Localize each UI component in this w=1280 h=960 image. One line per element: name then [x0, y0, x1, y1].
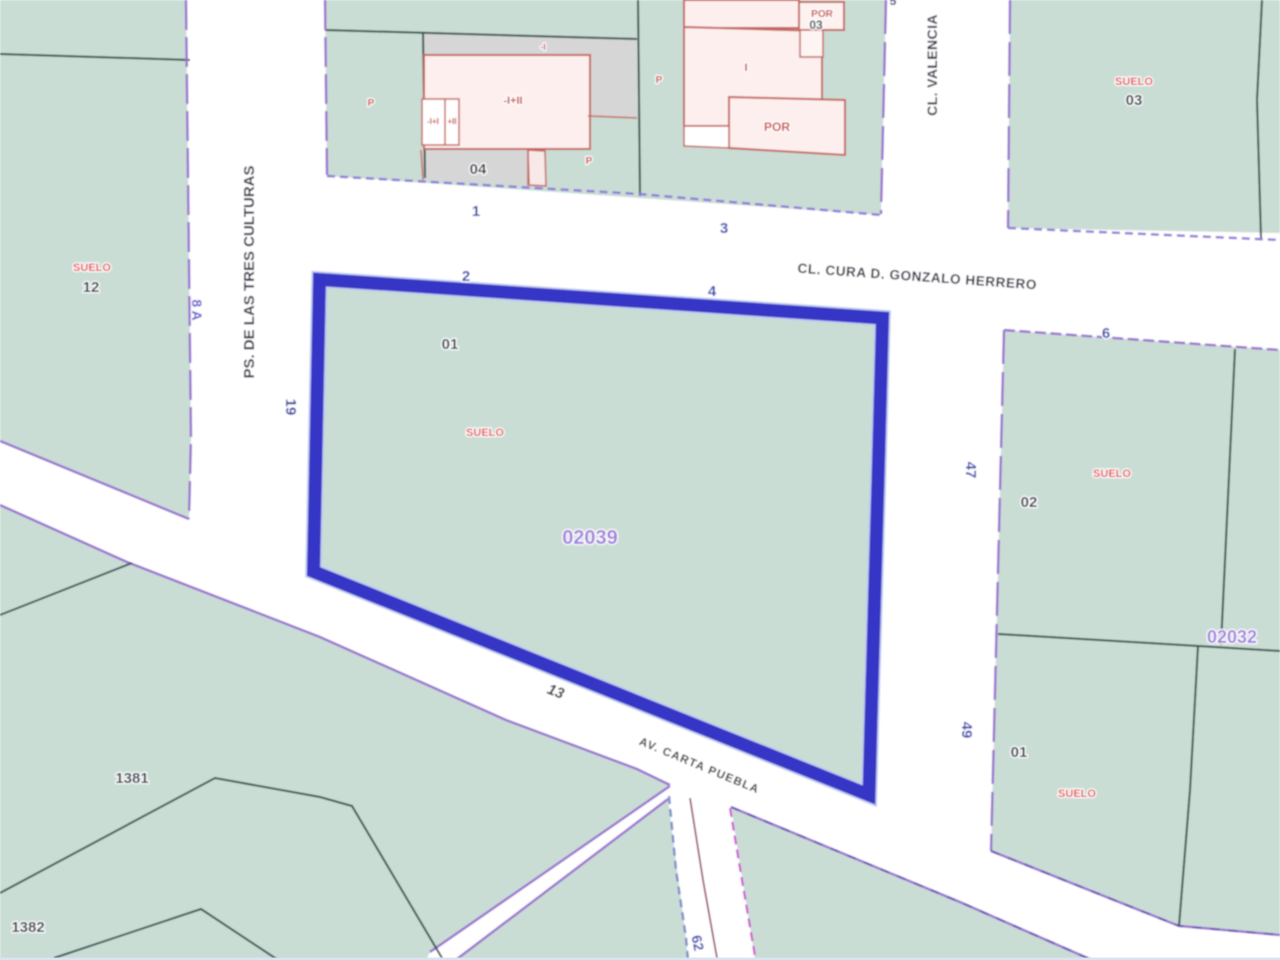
svg-text:49: 49	[958, 722, 975, 739]
svg-text:1: 1	[472, 203, 480, 220]
svg-text:01: 01	[442, 336, 459, 353]
svg-text:I: I	[744, 62, 747, 74]
svg-text:01: 01	[1011, 744, 1028, 761]
svg-text:04: 04	[470, 161, 487, 178]
svg-text:SUELO: SUELO	[73, 262, 111, 274]
svg-text:P: P	[656, 75, 663, 86]
svg-text:1382: 1382	[11, 919, 44, 936]
svg-text:PS. DE LAS TRES CULTURAS: PS. DE LAS TRES CULTURAS	[241, 165, 258, 378]
svg-text:1381: 1381	[115, 770, 148, 787]
svg-text:SUELO: SUELO	[1093, 468, 1131, 480]
svg-text:SUELO: SUELO	[466, 427, 504, 439]
svg-text:SUELO: SUELO	[1058, 788, 1096, 800]
svg-text:19: 19	[282, 399, 299, 416]
svg-text:P: P	[586, 156, 593, 167]
svg-text:02039: 02039	[562, 527, 618, 549]
svg-text:03: 03	[1126, 92, 1143, 109]
svg-text:CL. VALENCIA: CL. VALENCIA	[924, 14, 940, 116]
svg-text:2: 2	[462, 268, 470, 285]
svg-text:3: 3	[720, 220, 728, 237]
svg-text:02: 02	[1021, 494, 1038, 511]
svg-text:8 A: 8 A	[189, 299, 205, 320]
svg-text:-I+I: -I+I	[427, 117, 439, 126]
svg-text:-I+II: -I+II	[503, 95, 522, 107]
svg-text:4: 4	[708, 283, 717, 300]
svg-text:03: 03	[809, 18, 823, 32]
svg-text:P: P	[368, 98, 375, 109]
svg-text:5: 5	[890, 0, 897, 8]
svg-text:47: 47	[962, 462, 979, 479]
svg-text:-I: -I	[540, 42, 546, 52]
svg-text:POR: POR	[764, 120, 790, 134]
svg-text:12: 12	[83, 279, 100, 296]
svg-text:+II: +II	[447, 117, 456, 126]
svg-text:SUELO: SUELO	[1115, 76, 1153, 88]
svg-text:02032: 02032	[1207, 627, 1257, 647]
svg-text:6: 6	[1102, 325, 1110, 342]
